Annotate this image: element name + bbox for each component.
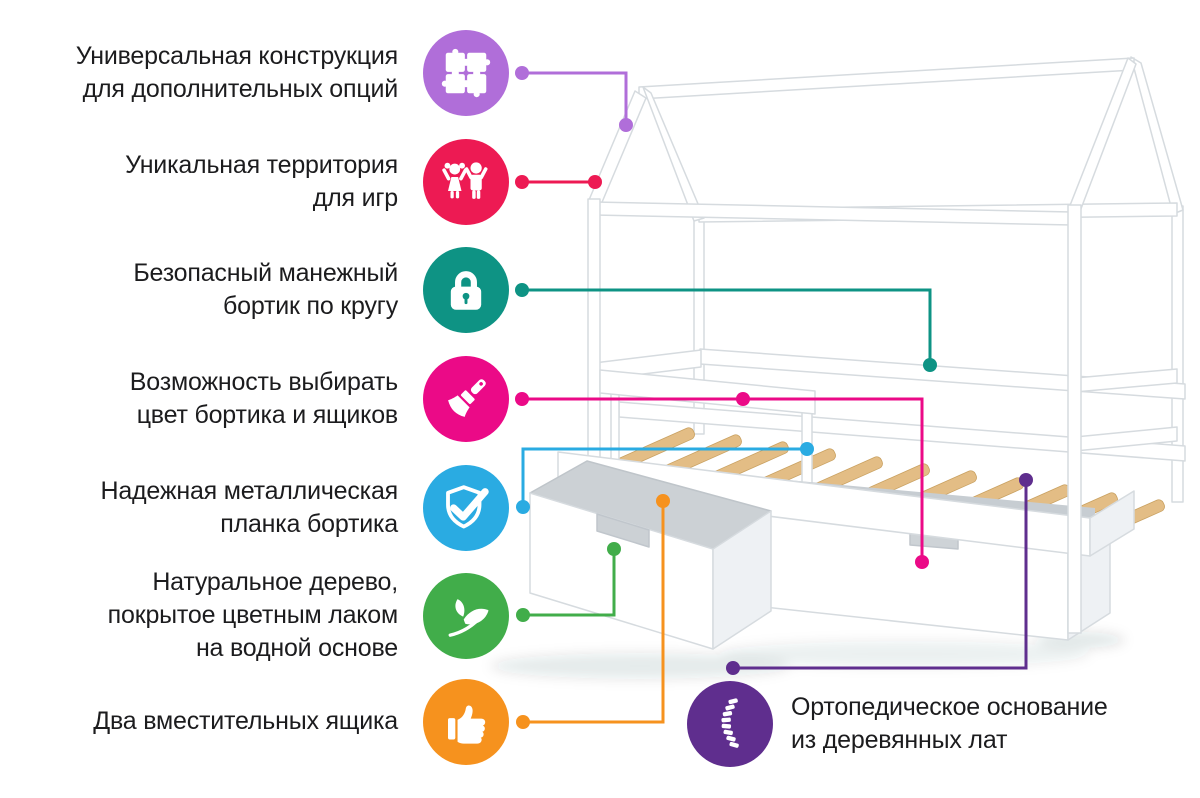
feature-label-play-territory: Уникальная территория для игр <box>16 149 398 215</box>
house-bed <box>490 57 1185 679</box>
feature-label-line: планка бортика <box>16 508 398 541</box>
safe-playpen-rail-badge <box>423 247 509 333</box>
play-territory-badge <box>423 139 509 225</box>
leaf-icon <box>439 589 493 643</box>
shield-check-icon <box>439 481 493 535</box>
front-left-post <box>588 199 600 491</box>
feature-label-line: Два вместительных ящика <box>16 705 398 738</box>
feature-label-line: для игр <box>16 182 398 215</box>
connector-play-territory <box>515 175 602 189</box>
feature-label-line: бортик по кругу <box>16 290 398 323</box>
orthopedic-base-badge <box>687 681 773 767</box>
children-icon <box>439 155 493 209</box>
rear-far-rafter <box>1131 57 1183 214</box>
two-drawers-badge <box>423 679 509 765</box>
feature-label-two-drawers: Два вместительных ящика <box>16 705 398 738</box>
natural-wood-badge <box>423 573 509 659</box>
connector-universal-construction <box>515 66 633 132</box>
universal-construction-badge <box>423 30 509 116</box>
color-choice-badge <box>423 356 509 442</box>
bed-features-infographic: Универсальная конструкция для дополнител… <box>0 0 1200 798</box>
paintbrush-icon <box>439 372 493 426</box>
feature-label-line: Надежная металлическая <box>16 475 398 508</box>
floor-shadow <box>490 632 1125 679</box>
feature-label-line: цвет бортика и ящиков <box>16 399 398 432</box>
feature-label-line: покрытое цветным лаком <box>16 599 398 632</box>
feature-label-metal-plank: Надежная металлическая планка бортика <box>16 475 398 541</box>
feature-label-line: Универсальная конструкция <box>16 40 398 73</box>
feature-label-line: на водной основе <box>16 632 398 665</box>
feature-label-line: Возможность выбирать <box>16 366 398 399</box>
connectors <box>515 66 1033 729</box>
lock-icon <box>439 263 493 317</box>
thumbs-up-icon <box>439 695 493 749</box>
feature-label-universal-construction: Универсальная конструкция для дополнител… <box>16 40 398 106</box>
front-near-rafter <box>589 91 646 207</box>
rear-near-rafter <box>1069 58 1136 214</box>
feature-label-natural-wood: Натуральное дерево, покрытое цветным лак… <box>16 566 398 665</box>
metal-plank-badge <box>423 465 509 551</box>
feature-label-line: Уникальная территория <box>16 149 398 182</box>
near-right-post <box>1068 205 1081 633</box>
feature-label-line: Ортопедическое основание <box>791 691 1108 724</box>
feature-label-line: из деревянных лат <box>791 724 1108 757</box>
feature-label-line: Безопасный манежный <box>16 257 398 290</box>
front-far-rafter <box>643 87 704 221</box>
feature-label-line: Натуральное дерево, <box>16 566 398 599</box>
spine-icon <box>703 697 757 751</box>
feature-label-orthopedic-base: Ортопедическое основание из деревянных л… <box>791 691 1108 757</box>
feature-label-color-choice: Возможность выбирать цвет бортика и ящик… <box>16 366 398 432</box>
ridge-beam <box>639 58 1134 99</box>
feature-label-line: для дополнительных опций <box>16 73 398 106</box>
puzzle-icon <box>439 46 493 100</box>
feature-label-safe-playpen-rail: Безопасный манежный бортик по кругу <box>16 257 398 323</box>
